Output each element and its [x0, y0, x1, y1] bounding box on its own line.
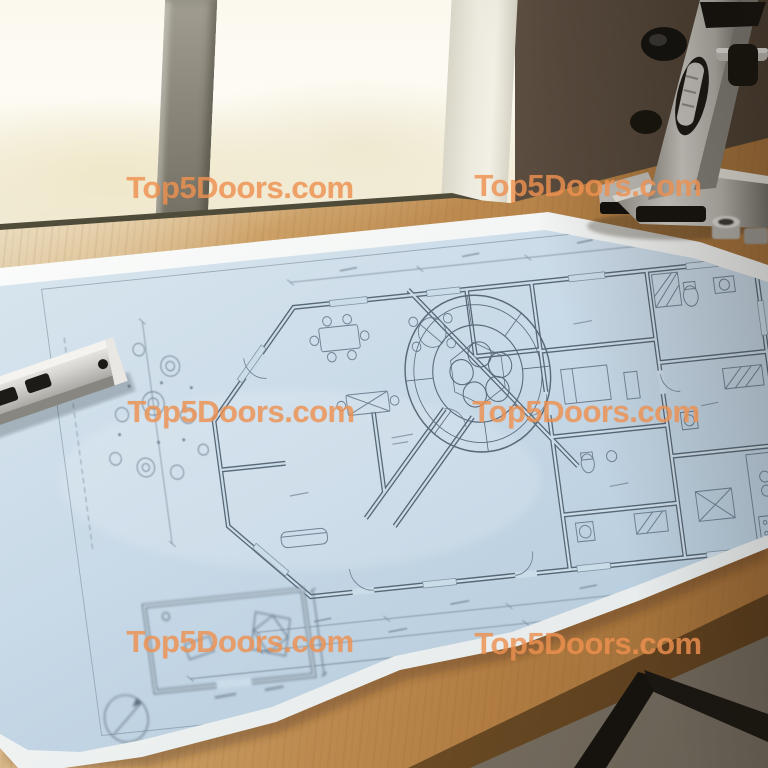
- photo-scene: Top5Doors.comTop5Doors.comTop5Doors.comT…: [0, 0, 768, 768]
- watermark-text: Top5Doors.com: [126, 624, 353, 660]
- watermark-text: Top5Doors.com: [474, 626, 701, 662]
- watermark-text: Top5Doors.com: [127, 394, 354, 430]
- watermark-text: Top5Doors.com: [472, 394, 699, 430]
- watermark-text: Top5Doors.com: [474, 168, 701, 204]
- watermark-layer: Top5Doors.comTop5Doors.comTop5Doors.comT…: [0, 0, 768, 768]
- watermark-text: Top5Doors.com: [126, 170, 353, 206]
